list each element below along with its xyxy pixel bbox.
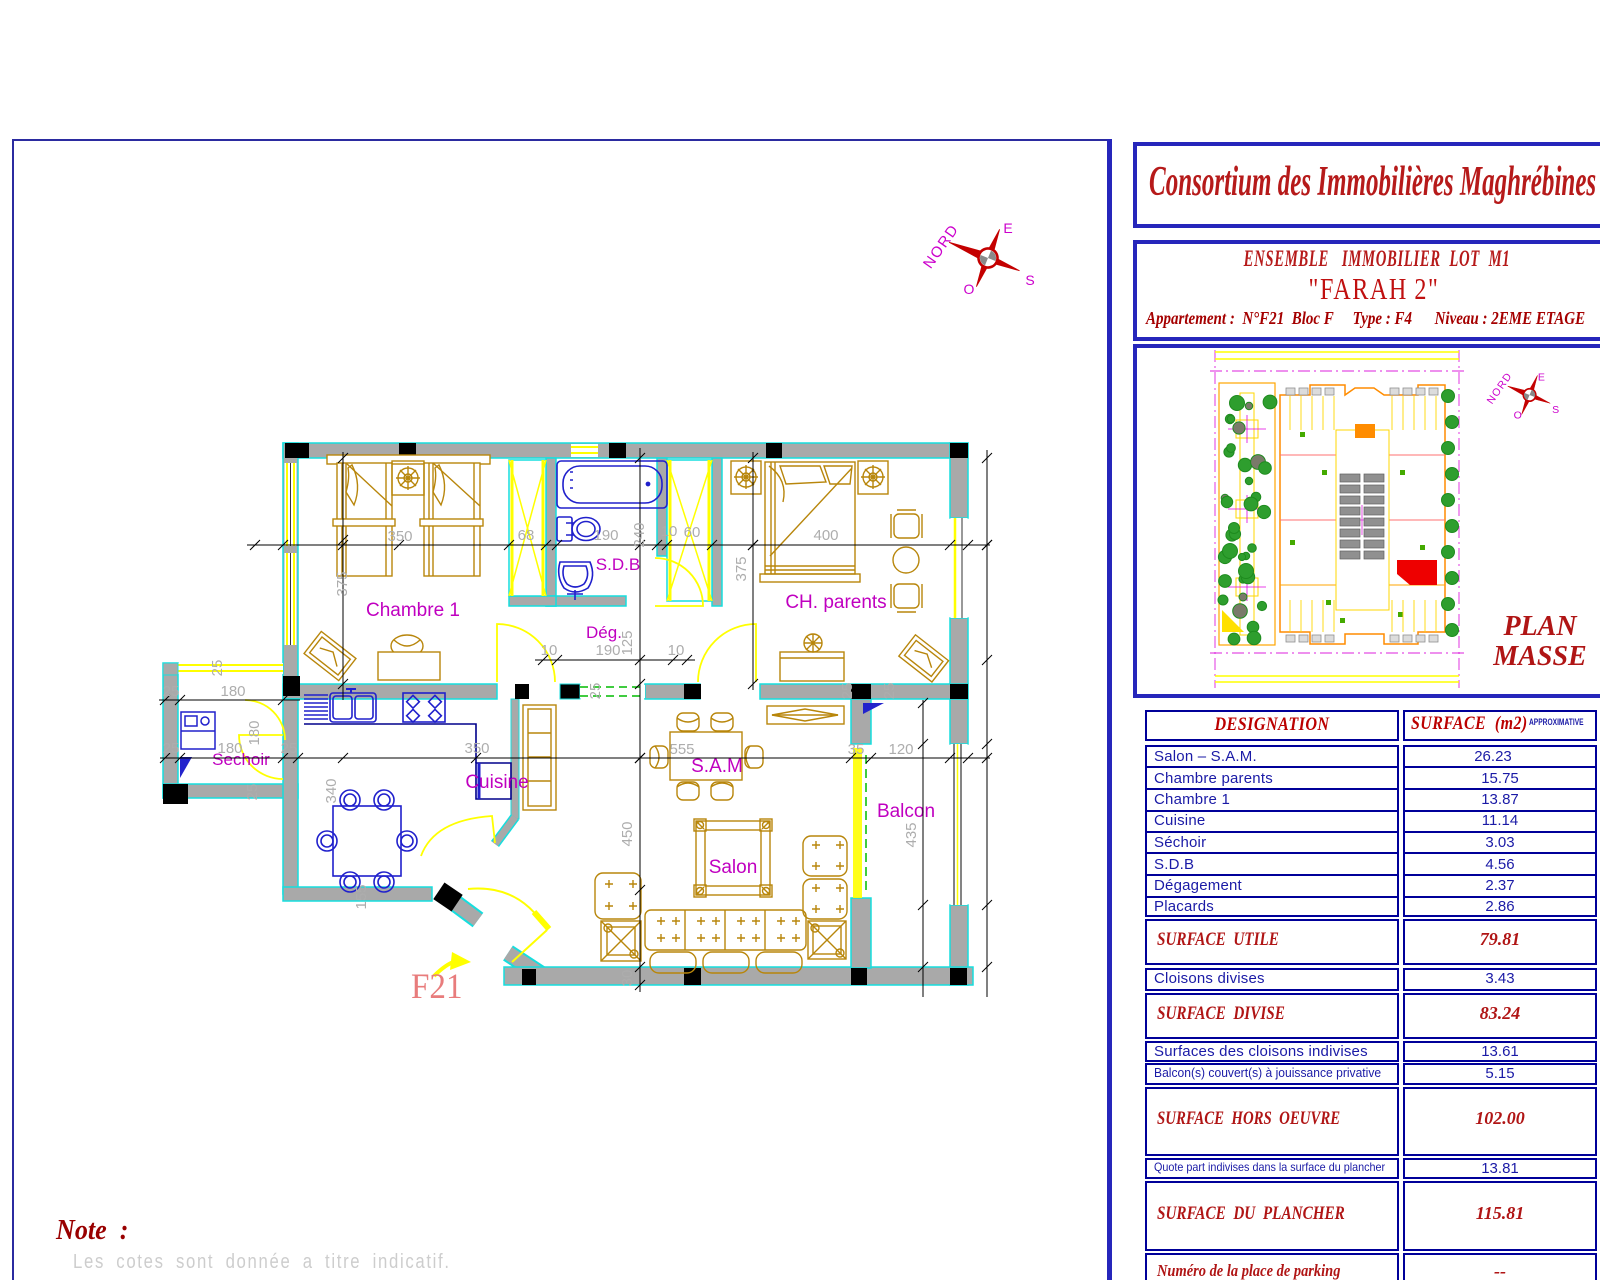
svg-text:Salon: Salon (709, 857, 758, 878)
svg-text:CH. parents: CH. parents (785, 592, 886, 613)
svg-text:30: 30 (619, 970, 636, 987)
svg-text:10: 10 (668, 642, 685, 659)
svg-text:25: 25 (209, 660, 226, 677)
svg-text:25: 25 (244, 784, 261, 801)
svg-text:35: 35 (848, 741, 865, 758)
svg-text:180: 180 (217, 740, 242, 757)
svg-text:25: 25 (881, 683, 898, 700)
svg-text:25: 25 (163, 740, 180, 757)
svg-text:Balcon: Balcon (877, 801, 935, 822)
svg-text:400: 400 (813, 527, 838, 544)
svg-text:25: 25 (839, 683, 856, 700)
svg-text:O: O (964, 281, 975, 297)
svg-text:S: S (1025, 272, 1034, 288)
svg-text:Dég.: Dég. (586, 623, 622, 642)
svg-text:25: 25 (281, 740, 298, 757)
svg-text:240: 240 (631, 522, 648, 547)
svg-text:180: 180 (246, 720, 263, 745)
svg-text:10: 10 (661, 523, 678, 540)
svg-text:F21: F21 (411, 967, 463, 1007)
svg-text:120: 120 (888, 741, 913, 758)
svg-text:68: 68 (518, 527, 535, 544)
svg-text:Chambre 1: Chambre 1 (366, 600, 460, 621)
svg-text:190: 190 (593, 527, 618, 544)
svg-text:340: 340 (323, 778, 340, 803)
svg-text:180: 180 (220, 683, 245, 700)
svg-text:350: 350 (464, 740, 489, 757)
svg-text:375: 375 (733, 556, 750, 581)
svg-text:S.D.B: S.D.B (596, 555, 640, 574)
svg-text:450: 450 (619, 821, 636, 846)
svg-text:10: 10 (541, 642, 558, 659)
svg-text:155: 155 (353, 884, 370, 909)
svg-text:435: 435 (903, 822, 920, 847)
svg-text:25: 25 (587, 683, 604, 700)
svg-text:125: 125 (619, 630, 636, 655)
svg-text:Cuisine: Cuisine (465, 772, 528, 793)
svg-text:60: 60 (684, 524, 701, 541)
svg-text:E: E (1003, 220, 1012, 236)
svg-text:S.A.M: S.A.M (691, 756, 743, 777)
svg-text:555: 555 (669, 741, 694, 758)
svg-text:25: 25 (163, 683, 180, 700)
svg-text:375: 375 (334, 571, 351, 596)
svg-text:350: 350 (387, 528, 412, 545)
svg-text:190: 190 (595, 642, 620, 659)
